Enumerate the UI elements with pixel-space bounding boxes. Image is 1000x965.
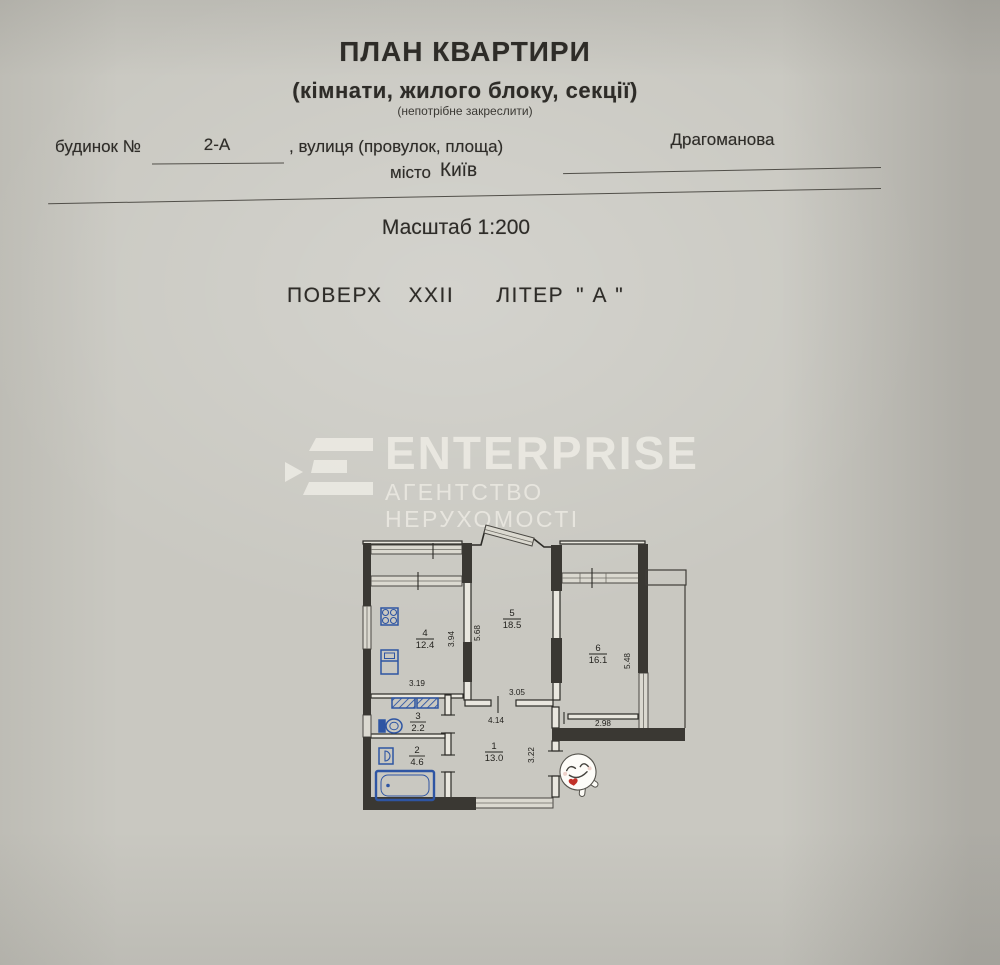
scale-text: Масштаб 1:200	[0, 216, 912, 240]
dimension-label: 3.94	[447, 631, 456, 647]
svg-text:12.4: 12.4	[416, 640, 435, 651]
fixtures	[376, 608, 438, 800]
svg-text:2.2: 2.2	[411, 723, 424, 734]
kitchen-sink-icon	[381, 650, 398, 674]
bathtub-icon	[376, 771, 434, 800]
room-label-1: 1 13.0	[485, 741, 504, 764]
dimension-label: 3.05	[509, 688, 525, 697]
dimension-label: 5.48	[623, 653, 632, 669]
windows	[363, 545, 648, 808]
svg-text:13.0: 13.0	[485, 753, 504, 764]
scanned-floor-plan-document: ПЛАН КВАРТИРИ (кімнати, жилого блоку, се…	[0, 0, 1000, 965]
letter-value: " А "	[576, 284, 624, 308]
floor-label: ПОВЕРХ	[287, 284, 383, 308]
city-value: Київ	[440, 160, 477, 182]
svg-text:3: 3	[415, 711, 420, 722]
dimension-label: 3.22	[527, 747, 536, 763]
svg-text:18.5: 18.5	[503, 620, 522, 631]
washing-machine-icon	[417, 698, 438, 708]
letter-label: ЛІТЕР	[496, 284, 564, 308]
watermark-name: ENTERPRISE	[385, 430, 733, 478]
washing-machine-icon	[392, 698, 415, 708]
street-underline	[563, 167, 881, 174]
window-mullions	[367, 550, 644, 804]
floor-letter-row: ПОВЕРХ XXII ЛІТЕР " А "	[287, 284, 624, 308]
floor-plan-drawing: 1 13.0 2 4.6 3 2.2 4 12.4 5	[358, 515, 702, 813]
enterprise-chevron-e-logo-icon	[283, 432, 375, 512]
toilet-icon	[379, 719, 402, 733]
bay-window	[484, 525, 534, 546]
adjacent-outline	[646, 570, 686, 728]
svg-text:4: 4	[422, 628, 427, 639]
dimension-label: 4.14	[488, 716, 504, 725]
page-title: ПЛАН КВАРТИРИ	[0, 36, 930, 68]
stove-icon	[381, 608, 398, 625]
building-number-label: будинок №	[55, 137, 141, 157]
page-subtitle: (кімнати, жилого блоку, секції)	[0, 78, 930, 104]
svg-text:2: 2	[414, 745, 419, 756]
street-value: Драгоманова	[565, 130, 880, 150]
svg-text:1: 1	[491, 741, 496, 752]
smiley-face-sticker-icon	[558, 752, 601, 800]
floor-value: XXII	[409, 284, 455, 308]
room-label-5: 5 18.5	[503, 608, 522, 631]
dimension-label: 5.68	[473, 625, 482, 641]
dimension-label: 2.98	[595, 719, 611, 728]
building-number-underline	[152, 163, 284, 165]
dimension-label: 3.19	[409, 679, 425, 688]
svg-text:6: 6	[595, 643, 600, 654]
room-label-6: 6 16.1	[589, 643, 608, 666]
room-label-4: 4 12.4	[416, 628, 435, 651]
building-number-value: 2-А	[152, 135, 282, 155]
svg-text:16.1: 16.1	[589, 655, 608, 666]
svg-text:4.6: 4.6	[410, 757, 423, 768]
city-underline	[48, 188, 881, 204]
city-label: місто	[390, 163, 431, 183]
street-label: , вулиця (провулок, площа)	[289, 137, 503, 157]
svg-text:5: 5	[509, 608, 514, 619]
strike-note: (непотрібне закреслити)	[0, 104, 930, 118]
room-label-3: 3 2.2	[410, 711, 426, 734]
room-label-2: 2 4.6	[409, 745, 425, 768]
washbasin-icon	[379, 748, 393, 764]
